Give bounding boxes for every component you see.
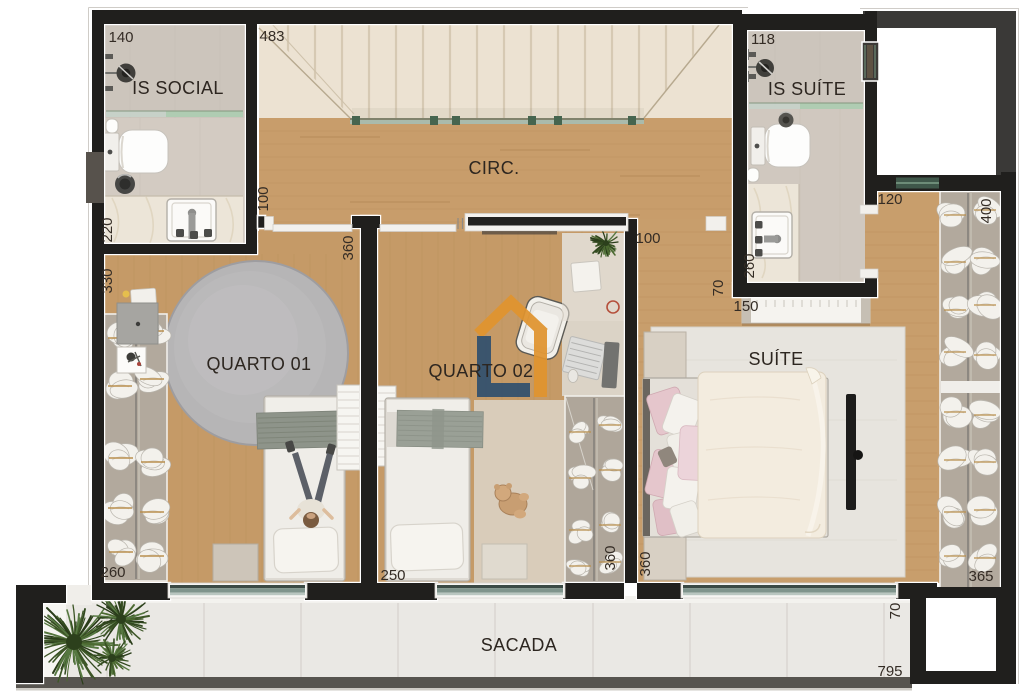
svg-text:360: 360	[602, 545, 619, 570]
svg-text:365: 365	[968, 568, 993, 585]
svg-text:330: 330	[99, 268, 116, 293]
svg-text:250: 250	[380, 567, 405, 584]
svg-text:SACADA: SACADA	[481, 635, 557, 655]
svg-text:360: 360	[637, 551, 654, 576]
svg-text:QUARTO 01: QUARTO 01	[207, 354, 312, 374]
svg-text:100: 100	[635, 230, 660, 247]
svg-text:260: 260	[100, 564, 125, 581]
svg-text:70: 70	[710, 280, 727, 297]
svg-text:260: 260	[741, 253, 758, 278]
svg-text:SUÍTE: SUÍTE	[748, 349, 803, 369]
svg-text:150: 150	[733, 298, 758, 315]
svg-text:IS SUÍTE: IS SUÍTE	[768, 79, 846, 99]
svg-text:483: 483	[259, 28, 284, 45]
svg-text:70: 70	[887, 603, 904, 620]
svg-text:400: 400	[978, 198, 995, 223]
svg-text:100: 100	[255, 186, 272, 211]
svg-text:118: 118	[751, 31, 775, 48]
svg-text:220: 220	[99, 217, 116, 242]
svg-text:360: 360	[340, 235, 357, 260]
svg-text:120: 120	[877, 191, 902, 208]
svg-text:IS SOCIAL: IS SOCIAL	[132, 78, 224, 98]
svg-text:795: 795	[877, 663, 902, 680]
svg-text:CIRC.: CIRC.	[469, 158, 520, 178]
svg-text:QUARTO 02: QUARTO 02	[429, 361, 534, 381]
svg-text:140: 140	[108, 29, 133, 46]
